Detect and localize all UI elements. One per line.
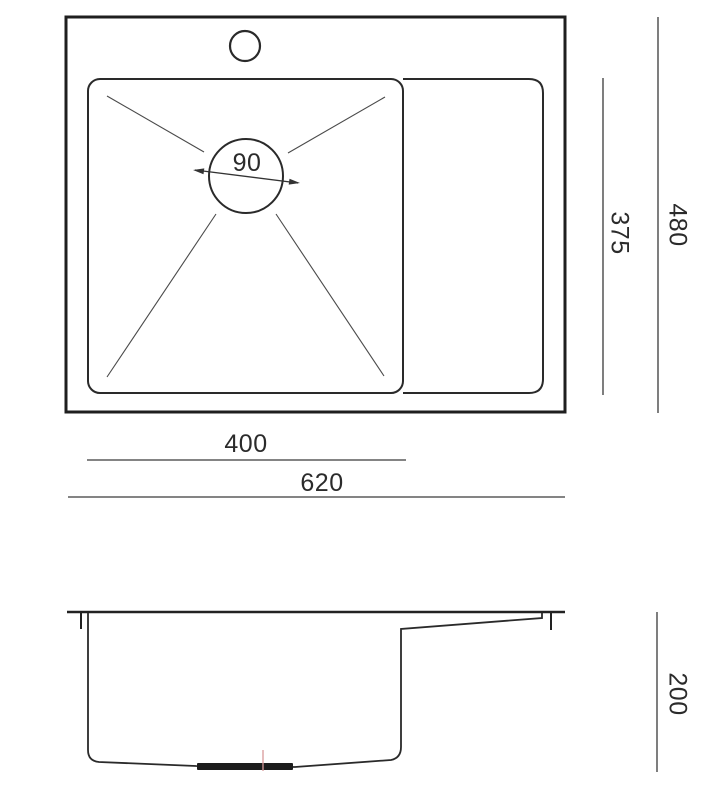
sink-outer-rim [66, 17, 565, 412]
dimension-label-bowl-depth: 375 [605, 211, 633, 254]
faucet-hole [230, 31, 260, 61]
plan-dimensions: 400 620 375 480 [68, 17, 691, 497]
dimension-label-bowl-width: 400 [224, 430, 267, 458]
drain-boss [197, 763, 293, 770]
side-view: 200 [67, 612, 691, 772]
arrowhead-right [289, 179, 300, 185]
bowl-profile [88, 613, 542, 767]
arrowhead-left [193, 168, 204, 174]
diagonal-top-right [288, 97, 385, 153]
sink-bowl [88, 79, 403, 393]
sink-technical-drawing: 90 400 620 375 480 200 [0, 0, 727, 800]
drainboard-section [403, 79, 543, 393]
dimension-label-height: 200 [663, 672, 691, 715]
dimension-label-drain-diameter: 90 [233, 149, 262, 177]
top-view: 90 [66, 17, 565, 412]
dimension-label-overall-width: 620 [300, 469, 343, 497]
drawing-svg: 90 400 620 375 480 200 [0, 0, 727, 800]
diagonal-top-left [107, 96, 204, 152]
diagonal-bottom-left [107, 214, 216, 377]
diagonal-bottom-right [276, 214, 384, 376]
dimension-label-overall-depth: 480 [663, 203, 691, 246]
